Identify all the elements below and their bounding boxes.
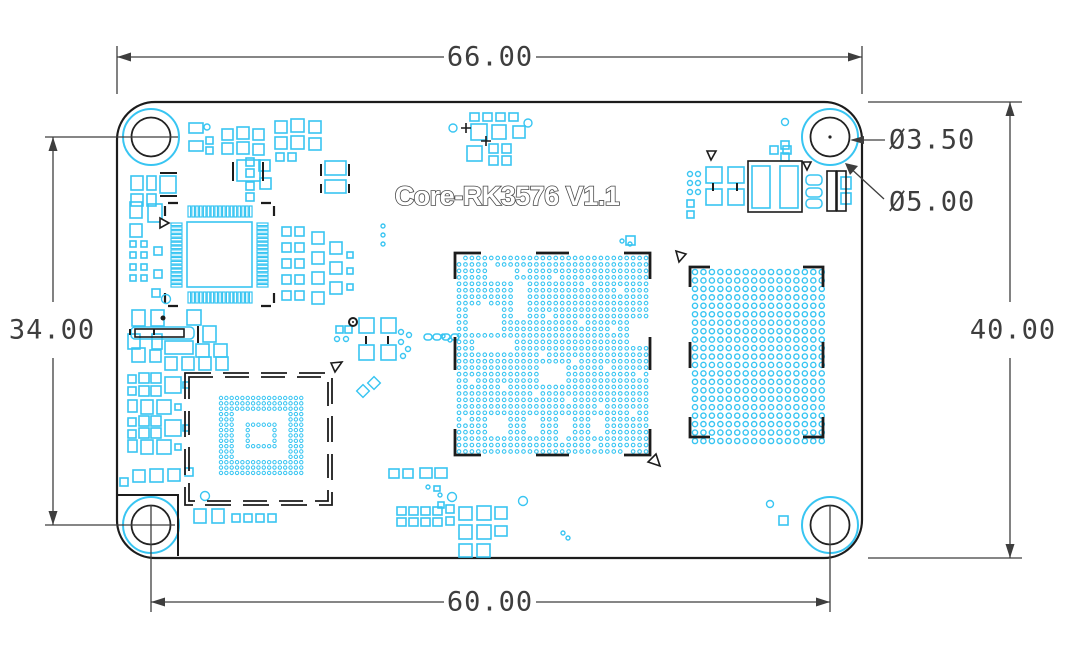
bga-ball — [554, 301, 558, 305]
pad-rect — [196, 344, 209, 357]
bga-ball — [701, 422, 706, 427]
pad-rect — [141, 252, 147, 258]
pad-rect — [282, 243, 291, 252]
bga-ball — [785, 286, 790, 291]
bga-ball — [230, 428, 233, 431]
bga-ball — [535, 334, 539, 338]
bga-ball — [612, 366, 616, 370]
bga-ball — [625, 372, 629, 376]
bga-ball — [709, 269, 714, 274]
bga-ball — [752, 354, 757, 359]
bga-ball — [735, 269, 740, 274]
bga-ball — [760, 303, 765, 308]
bga-ball — [573, 334, 577, 338]
bga-ball — [644, 359, 648, 363]
bga-ball — [278, 407, 281, 410]
qfp-pin — [196, 292, 199, 303]
bga-ball — [692, 329, 697, 334]
qfp-pin — [171, 261, 182, 264]
bga-ball — [496, 379, 500, 383]
qfp-pin — [171, 235, 182, 238]
bga-ball — [819, 303, 824, 308]
bga-ball — [477, 411, 481, 415]
bga-ball — [225, 466, 228, 469]
bga-ball — [718, 422, 723, 427]
pad-rect — [330, 282, 342, 294]
bga-ball — [567, 276, 571, 280]
bga-ball — [515, 340, 519, 344]
bga-ball — [819, 337, 824, 342]
bga-ball — [593, 385, 597, 389]
bga-ball — [599, 366, 603, 370]
bga-ball — [477, 301, 481, 305]
bga-ball — [638, 256, 642, 260]
bga-ball — [528, 301, 532, 305]
bga-ball — [464, 269, 468, 273]
bga-ball — [768, 295, 773, 300]
bga-ball — [692, 413, 697, 418]
bga-ball — [548, 282, 552, 286]
bga-ball — [230, 471, 233, 474]
bga-ball — [464, 366, 468, 370]
bga-ball — [593, 340, 597, 344]
pad-rect — [421, 518, 430, 526]
bga-ball — [246, 466, 249, 469]
bga-ball — [580, 424, 584, 428]
bga-ball — [802, 388, 807, 393]
bga-ball — [489, 385, 493, 389]
bga-ball — [593, 308, 597, 312]
bga-ball — [509, 417, 513, 421]
qfp-body — [187, 222, 252, 287]
bga-ball — [768, 345, 773, 350]
bga-ball — [599, 385, 603, 389]
bga-ball — [273, 439, 276, 442]
bga-ball — [489, 256, 493, 260]
bga-ball — [625, 398, 629, 402]
bga-ball — [267, 423, 270, 426]
bga-ball — [593, 276, 597, 280]
pad-rect — [244, 514, 252, 522]
board-title: Core-RK3576 V1.1 — [395, 181, 620, 211]
bga-ball — [246, 402, 249, 405]
bga-ball — [644, 366, 648, 370]
bga-ball — [586, 353, 590, 357]
pad-rect — [194, 509, 206, 523]
pad-rect — [152, 289, 160, 297]
bga-ball — [528, 385, 532, 389]
bga-ball — [777, 269, 782, 274]
bga-ball — [785, 312, 790, 317]
pad-rect — [132, 348, 145, 362]
bga-ball — [528, 372, 532, 376]
bga-ball — [638, 417, 642, 421]
bga-ball — [528, 450, 532, 454]
bga-ball — [515, 334, 519, 338]
bga-ball — [692, 371, 697, 376]
bga-ball — [528, 276, 532, 280]
bga-ball — [548, 321, 552, 325]
bga-ball — [567, 347, 571, 351]
bga-ball — [580, 308, 584, 312]
bga-ball — [246, 407, 249, 410]
bga-ball — [515, 256, 519, 260]
bga-ball — [509, 443, 513, 447]
bga-ball — [586, 379, 590, 383]
pad-rect — [154, 247, 162, 255]
bga-ball — [457, 340, 461, 344]
qfp-pin — [238, 292, 241, 303]
bga-ball — [541, 321, 545, 325]
bga-ball — [502, 314, 506, 318]
bga-ball — [709, 286, 714, 291]
qfp-pin — [226, 206, 229, 217]
bga-ball — [785, 438, 790, 443]
bga-ball — [802, 371, 807, 376]
bga-ball — [554, 321, 558, 325]
bga-ball — [496, 372, 500, 376]
bga-ball — [515, 443, 519, 447]
qfp-pin — [249, 292, 252, 303]
bga-ball — [612, 359, 616, 363]
bga-ball — [760, 388, 765, 393]
bga-ball — [752, 422, 757, 427]
bga-ball — [718, 413, 723, 418]
bga-ball — [483, 288, 487, 292]
pad-rect — [157, 400, 171, 414]
bga-ball — [777, 354, 782, 359]
pad-rect — [291, 136, 304, 149]
bga-ball — [593, 288, 597, 292]
bga-ball — [726, 329, 731, 334]
bga-ball — [464, 340, 468, 344]
pad-rect — [256, 514, 264, 522]
pad-rect — [128, 375, 136, 383]
bga-ball — [768, 269, 773, 274]
bga-ball — [593, 263, 597, 267]
bga-ball — [709, 430, 714, 435]
bga-ball — [262, 396, 265, 399]
bga-ball — [726, 388, 731, 393]
bga-ball — [567, 372, 571, 376]
qfp-pin — [192, 292, 195, 303]
bga-ball — [593, 282, 597, 286]
bga-ball — [300, 450, 303, 453]
bga-ball — [743, 295, 748, 300]
bga-ball — [548, 334, 552, 338]
bga-ball — [522, 430, 526, 434]
bga-ball — [819, 405, 824, 410]
bga-ball — [618, 385, 622, 389]
qfp-pin — [257, 235, 268, 238]
bga-ball — [709, 396, 714, 401]
bga-ball — [573, 398, 577, 402]
bga-ball — [586, 372, 590, 376]
bga-ball — [522, 450, 526, 454]
bga-ball — [618, 411, 622, 415]
pad-rect — [397, 507, 406, 515]
bga-ball — [554, 327, 558, 331]
bga-ball — [273, 461, 276, 464]
pad-circle — [448, 493, 457, 502]
bga-ball — [735, 362, 740, 367]
pad-rect — [253, 129, 264, 140]
pad-bar — [752, 166, 770, 208]
pad-rect — [471, 124, 487, 140]
bga-ball — [502, 443, 506, 447]
bga-ball — [599, 437, 603, 441]
pad-circle — [406, 347, 411, 352]
bga-ball — [528, 340, 532, 344]
bga-ball — [606, 295, 610, 299]
bga-ball — [483, 263, 487, 267]
pad-rect — [409, 507, 418, 515]
bga-ball — [246, 434, 249, 437]
bga-ball — [811, 422, 816, 427]
bga-ball — [692, 312, 697, 317]
pad-rect — [446, 517, 454, 525]
bga-ball — [580, 334, 584, 338]
qfp-pin — [171, 246, 182, 249]
bga-ball — [726, 371, 731, 376]
pad-rect — [175, 404, 181, 410]
pad-rect — [133, 470, 145, 482]
bga-ball — [528, 256, 532, 260]
bga-ball — [300, 412, 303, 415]
bga-ball — [644, 256, 648, 260]
bga-ball — [464, 321, 468, 325]
bga-ball — [573, 308, 577, 312]
bga-ball — [580, 392, 584, 396]
pad-circle — [381, 224, 385, 228]
bga-ball — [496, 392, 500, 396]
bga-ball — [230, 455, 233, 458]
bga-ball — [509, 282, 513, 286]
arrowhead — [1006, 544, 1015, 558]
bga-ball — [489, 372, 493, 376]
bga-ball — [257, 466, 260, 469]
bga-ball — [548, 411, 552, 415]
bga-ball — [528, 314, 532, 318]
pad-rect — [295, 259, 304, 268]
bga-ball — [496, 353, 500, 357]
bga-ball — [457, 263, 461, 267]
bga-ball — [701, 405, 706, 410]
bga-ball — [241, 461, 244, 464]
bga-ball — [709, 379, 714, 384]
bga-ball — [522, 424, 526, 428]
pad-rect — [309, 138, 321, 150]
bga-ball — [735, 320, 740, 325]
bga-ball — [638, 437, 642, 441]
bga-ball — [502, 256, 506, 260]
bga-ball — [777, 405, 782, 410]
bga-ball — [768, 371, 773, 376]
bga-ball — [692, 405, 697, 410]
bga-ball — [752, 286, 757, 291]
bga-ball — [535, 437, 539, 441]
bga-ball — [606, 398, 610, 402]
bga-ball — [612, 340, 616, 344]
bga-ball — [289, 444, 292, 447]
bga-ball — [599, 321, 603, 325]
dim-hole-span-label: 60.00 — [447, 587, 533, 618]
bga-ball — [735, 438, 740, 443]
bga-ball — [502, 327, 506, 331]
bga-ball — [631, 392, 635, 396]
bga-ball — [752, 312, 757, 317]
bga-ball — [509, 372, 513, 376]
bga-ball — [515, 372, 519, 376]
bga-ball — [768, 337, 773, 342]
bga-ball — [752, 329, 757, 334]
pad-circle — [519, 497, 528, 506]
pad-rect — [130, 202, 142, 218]
bga-ball — [785, 337, 790, 342]
bga-ball — [515, 392, 519, 396]
bga-ball — [785, 405, 790, 410]
pad-rect — [189, 123, 203, 133]
bga-ball — [541, 392, 545, 396]
bga-ball — [567, 314, 571, 318]
bga-ball — [718, 320, 723, 325]
bga-ball — [625, 385, 629, 389]
qfp-pin — [230, 292, 233, 303]
pad-rect — [151, 373, 161, 383]
bga-ball — [631, 372, 635, 376]
bga-ball — [777, 337, 782, 342]
bga-ball — [567, 385, 571, 389]
bga-ball — [819, 320, 824, 325]
bga-ball — [606, 314, 610, 318]
bga-ball — [802, 422, 807, 427]
qfp-pin — [200, 292, 203, 303]
bga-ball — [606, 276, 610, 280]
bga-ball — [709, 388, 714, 393]
bga-ball — [230, 418, 233, 421]
bga-ball — [794, 320, 799, 325]
bga-ball — [606, 372, 610, 376]
pad-rect — [237, 160, 260, 181]
qfp-pin — [171, 223, 182, 226]
bga-ball — [777, 413, 782, 418]
bga-ball — [599, 347, 603, 351]
bga-ball — [709, 405, 714, 410]
bga-ball — [528, 263, 532, 267]
bga-ball — [483, 392, 487, 396]
bga-ball — [606, 269, 610, 273]
bga-ball — [794, 345, 799, 350]
bga-ball — [606, 417, 610, 421]
bga-ball — [225, 444, 228, 447]
bga-ball — [625, 392, 629, 396]
bga-ball — [599, 340, 603, 344]
arrowhead — [49, 137, 58, 151]
bga-ball — [618, 366, 622, 370]
bga-ball — [267, 396, 270, 399]
bga-ball — [496, 288, 500, 292]
bga-ball — [811, 354, 816, 359]
bga-ball — [638, 276, 642, 280]
bga-ball — [777, 312, 782, 317]
qfp-pin — [171, 227, 182, 230]
bga-ball — [560, 334, 564, 338]
bga-ball — [644, 372, 648, 376]
bga-ball — [225, 423, 228, 426]
bga-ball — [548, 392, 552, 396]
pad-oval — [806, 188, 822, 197]
pad-rect — [347, 252, 353, 258]
bga-ball — [470, 295, 474, 299]
pad-circle — [566, 536, 570, 540]
bga-ball — [760, 354, 765, 359]
pad-diamond — [357, 385, 370, 398]
bga-ball — [743, 329, 748, 334]
bga-ball — [625, 359, 629, 363]
bga-ball — [606, 411, 610, 415]
bga-ball — [477, 424, 481, 428]
bga-ball — [612, 314, 616, 318]
bga-ball — [638, 379, 642, 383]
bga-ball — [644, 437, 648, 441]
bga-ball — [489, 295, 493, 299]
bga-ball — [541, 359, 545, 363]
bga-ball — [811, 295, 816, 300]
qfp-pin — [211, 206, 214, 217]
bga-ball — [606, 256, 610, 260]
bga-ball — [554, 398, 558, 402]
fiducial-cross — [461, 123, 471, 133]
bga-ball — [718, 345, 723, 350]
bga-ball — [289, 434, 292, 437]
bga-ball — [618, 443, 622, 447]
bga-ball — [528, 334, 532, 338]
pad-circle — [401, 354, 406, 359]
bga-ball — [726, 337, 731, 342]
bga-ball — [644, 347, 648, 351]
qfp-pin — [188, 206, 191, 217]
bga-ball — [541, 269, 545, 273]
bga-ball — [580, 327, 584, 331]
bga-ball — [219, 434, 222, 437]
arrowhead — [816, 598, 830, 607]
bga-ball — [560, 308, 564, 312]
bga-ball — [794, 396, 799, 401]
bga-ball — [509, 288, 513, 292]
bga-ball — [743, 320, 748, 325]
pad-oval — [424, 334, 432, 340]
bga-ball — [631, 443, 635, 447]
bga-ball — [743, 354, 748, 359]
bga-ball — [289, 428, 292, 431]
bga-ball — [580, 276, 584, 280]
pad-rect — [477, 525, 491, 539]
bga-ball — [726, 422, 731, 427]
qfp-pin — [207, 292, 210, 303]
bga-ball — [802, 362, 807, 367]
bga-ball — [618, 417, 622, 421]
bga-ball — [483, 437, 487, 441]
pad-rect — [141, 440, 153, 454]
bga-ball — [802, 337, 807, 342]
bga-ball — [528, 282, 532, 286]
bga-ball — [625, 256, 629, 260]
bga-ball — [625, 314, 629, 318]
bga-ball — [735, 371, 740, 376]
bga-ball — [811, 405, 816, 410]
bga-ball — [701, 388, 706, 393]
pad-rect — [246, 193, 254, 201]
